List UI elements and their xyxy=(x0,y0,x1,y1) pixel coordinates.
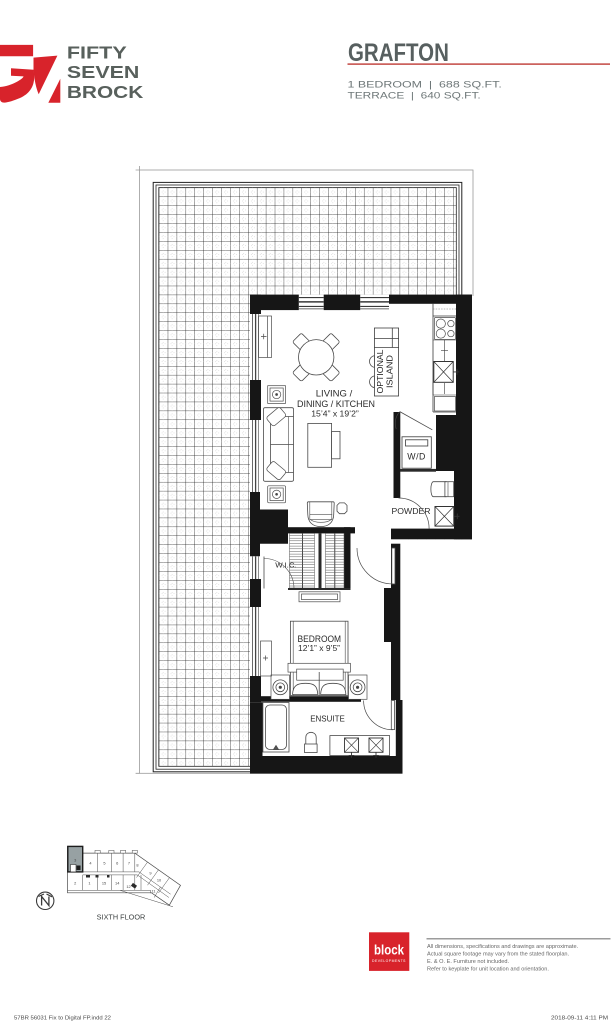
svg-text:W/D: W/D xyxy=(407,452,426,462)
svg-text:All dimensions, specifications: All dimensions, specifications and drawi… xyxy=(427,944,579,950)
svg-text:12’1” x 9’5”: 12’1” x 9’5” xyxy=(298,644,340,653)
svg-text:8: 8 xyxy=(136,863,138,868)
svg-text:2: 2 xyxy=(74,880,76,885)
svg-text:E. & O. E. Furniture not inclu: E. & O. E. Furniture not included. xyxy=(427,959,510,965)
svg-text:57BR 56031 Fix to Digital FP.i: 57BR 56031 Fix to Digital FP.indd 22 xyxy=(14,1015,111,1021)
svg-text:1 BEDROOM | 688 SQ.FT.: 1 BEDROOM | 688 SQ.FT. xyxy=(348,79,502,89)
svg-text:2018-09-11 4:11 PM: 2018-09-11 4:11 PM xyxy=(551,1015,608,1021)
svg-text:ISLAND: ISLAND xyxy=(385,355,395,388)
svg-text:TERRACE | 640 SQ.FT.: TERRACE | 640 SQ.FT. xyxy=(348,91,481,101)
svg-text:3: 3 xyxy=(74,858,76,863)
svg-text:BEDROOM: BEDROOM xyxy=(298,633,342,644)
svg-text:DINING / KITCHEN: DINING / KITCHEN xyxy=(297,398,375,409)
svg-text:15: 15 xyxy=(102,880,106,885)
svg-text:9: 9 xyxy=(149,871,151,876)
svg-text:POWDER: POWDER xyxy=(392,506,431,516)
svg-text:15’4” x 19’2”: 15’4” x 19’2” xyxy=(311,409,359,418)
svg-text:FIFTY: FIFTY xyxy=(67,42,127,62)
svg-text:Actual square footage may vary: Actual square footage may vary from the … xyxy=(427,951,570,957)
svg-text:SIXTH FLOOR: SIXTH FLOOR xyxy=(97,914,146,921)
svg-text:DEVELOPMENTS: DEVELOPMENTS xyxy=(372,959,406,963)
svg-text:6: 6 xyxy=(116,860,118,865)
svg-text:SEVEN: SEVEN xyxy=(67,62,139,82)
svg-text:11: 11 xyxy=(151,889,155,894)
svg-text:block: block xyxy=(374,943,404,958)
svg-text:LIVING /: LIVING / xyxy=(316,388,353,399)
svg-text:Refer to keyplate for unit loc: Refer to keyplate for unit location and … xyxy=(427,966,549,972)
svg-text:OPTIONAL: OPTIONAL xyxy=(375,349,385,393)
svg-text:5: 5 xyxy=(103,860,105,865)
svg-text:GRAFTON: GRAFTON xyxy=(348,40,449,67)
svg-text:12: 12 xyxy=(126,884,130,889)
svg-text:7: 7 xyxy=(128,860,130,865)
svg-text:1: 1 xyxy=(88,880,90,885)
svg-text:BROCK: BROCK xyxy=(67,82,144,102)
svg-text:ENSUITE: ENSUITE xyxy=(310,713,345,723)
